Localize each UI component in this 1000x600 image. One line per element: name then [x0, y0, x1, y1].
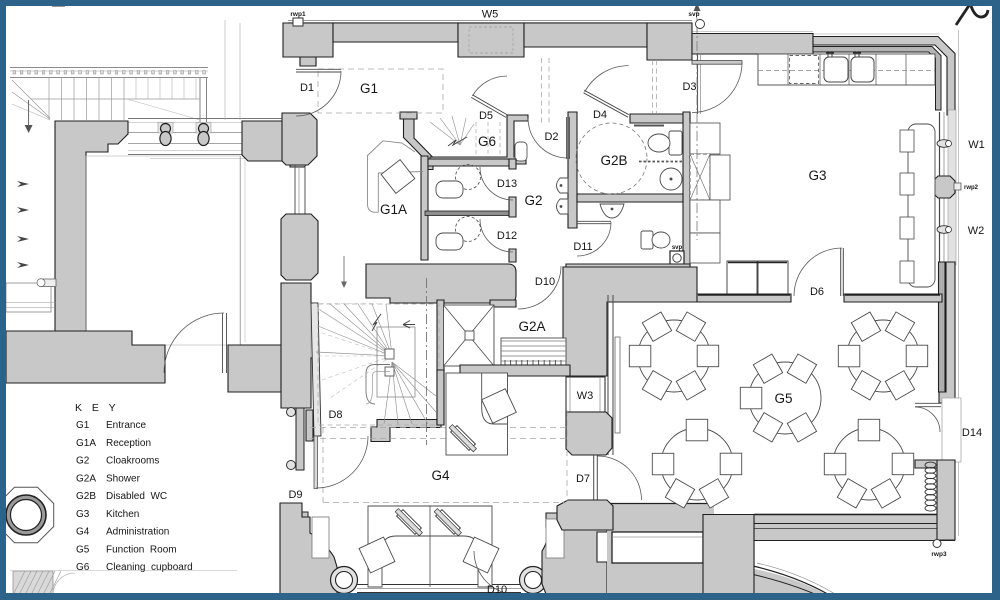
svg-text:Reception: Reception	[106, 438, 151, 449]
svg-text:W2: W2	[968, 225, 985, 237]
svg-text:Disabled WC: Disabled WC	[106, 491, 167, 502]
svg-text:G2A: G2A	[518, 319, 545, 334]
svg-text:G3: G3	[76, 509, 90, 520]
svg-text:rwp2: rwp2	[964, 185, 979, 191]
svg-text:G1A: G1A	[380, 202, 407, 217]
svg-text:rwp1: rwp1	[290, 11, 306, 18]
svg-text:D12: D12	[497, 230, 517, 242]
svg-text:svp: svp	[688, 11, 699, 18]
svg-text:D9: D9	[288, 489, 302, 501]
svg-text:G5: G5	[774, 391, 792, 406]
svg-text:G5: G5	[76, 544, 90, 555]
svg-text:W5: W5	[482, 9, 499, 21]
svg-text:D5: D5	[479, 110, 493, 122]
svg-text:Kitchen: Kitchen	[106, 509, 139, 520]
svg-text:G2B: G2B	[76, 491, 96, 502]
svg-text:G1: G1	[76, 420, 90, 431]
svg-text:W1: W1	[968, 139, 985, 151]
svg-text:G2B: G2B	[600, 153, 627, 168]
svg-text:D1: D1	[300, 82, 314, 94]
svg-text:G2: G2	[524, 193, 542, 208]
svg-text:G1: G1	[360, 81, 378, 96]
svg-text:Administration: Administration	[106, 527, 169, 538]
svg-text:G6: G6	[478, 134, 496, 149]
svg-text:G2A: G2A	[76, 473, 96, 484]
svg-text:G6: G6	[76, 562, 90, 573]
svg-text:Cloakrooms: Cloakrooms	[106, 456, 159, 467]
svg-text:Cleaning cupboard: Cleaning cupboard	[106, 562, 193, 573]
svg-text:D7: D7	[576, 473, 590, 485]
svg-text:D3: D3	[682, 81, 696, 93]
svg-text:svp: svp	[672, 245, 683, 251]
svg-text:D8: D8	[328, 409, 342, 421]
svg-text:D13: D13	[497, 178, 517, 190]
svg-text:K E Y: K E Y	[75, 402, 119, 414]
svg-text:D11: D11	[573, 241, 592, 253]
svg-text:G2: G2	[76, 456, 90, 467]
svg-text:W3: W3	[577, 390, 594, 402]
svg-text:G4: G4	[76, 527, 90, 538]
svg-text:Entrance: Entrance	[106, 420, 146, 431]
svg-text:D10: D10	[535, 276, 555, 288]
svg-text:Function Room: Function Room	[106, 544, 177, 555]
svg-text:G3: G3	[808, 168, 826, 183]
svg-text:D2: D2	[544, 131, 558, 143]
svg-text:G1A: G1A	[76, 438, 96, 449]
svg-text:G4: G4	[431, 468, 450, 483]
svg-text:rwp3: rwp3	[931, 551, 947, 558]
svg-text:D6: D6	[810, 286, 824, 298]
svg-text:D4: D4	[593, 109, 607, 121]
svg-text:D14: D14	[962, 427, 982, 439]
svg-text:Shower: Shower	[106, 473, 141, 484]
